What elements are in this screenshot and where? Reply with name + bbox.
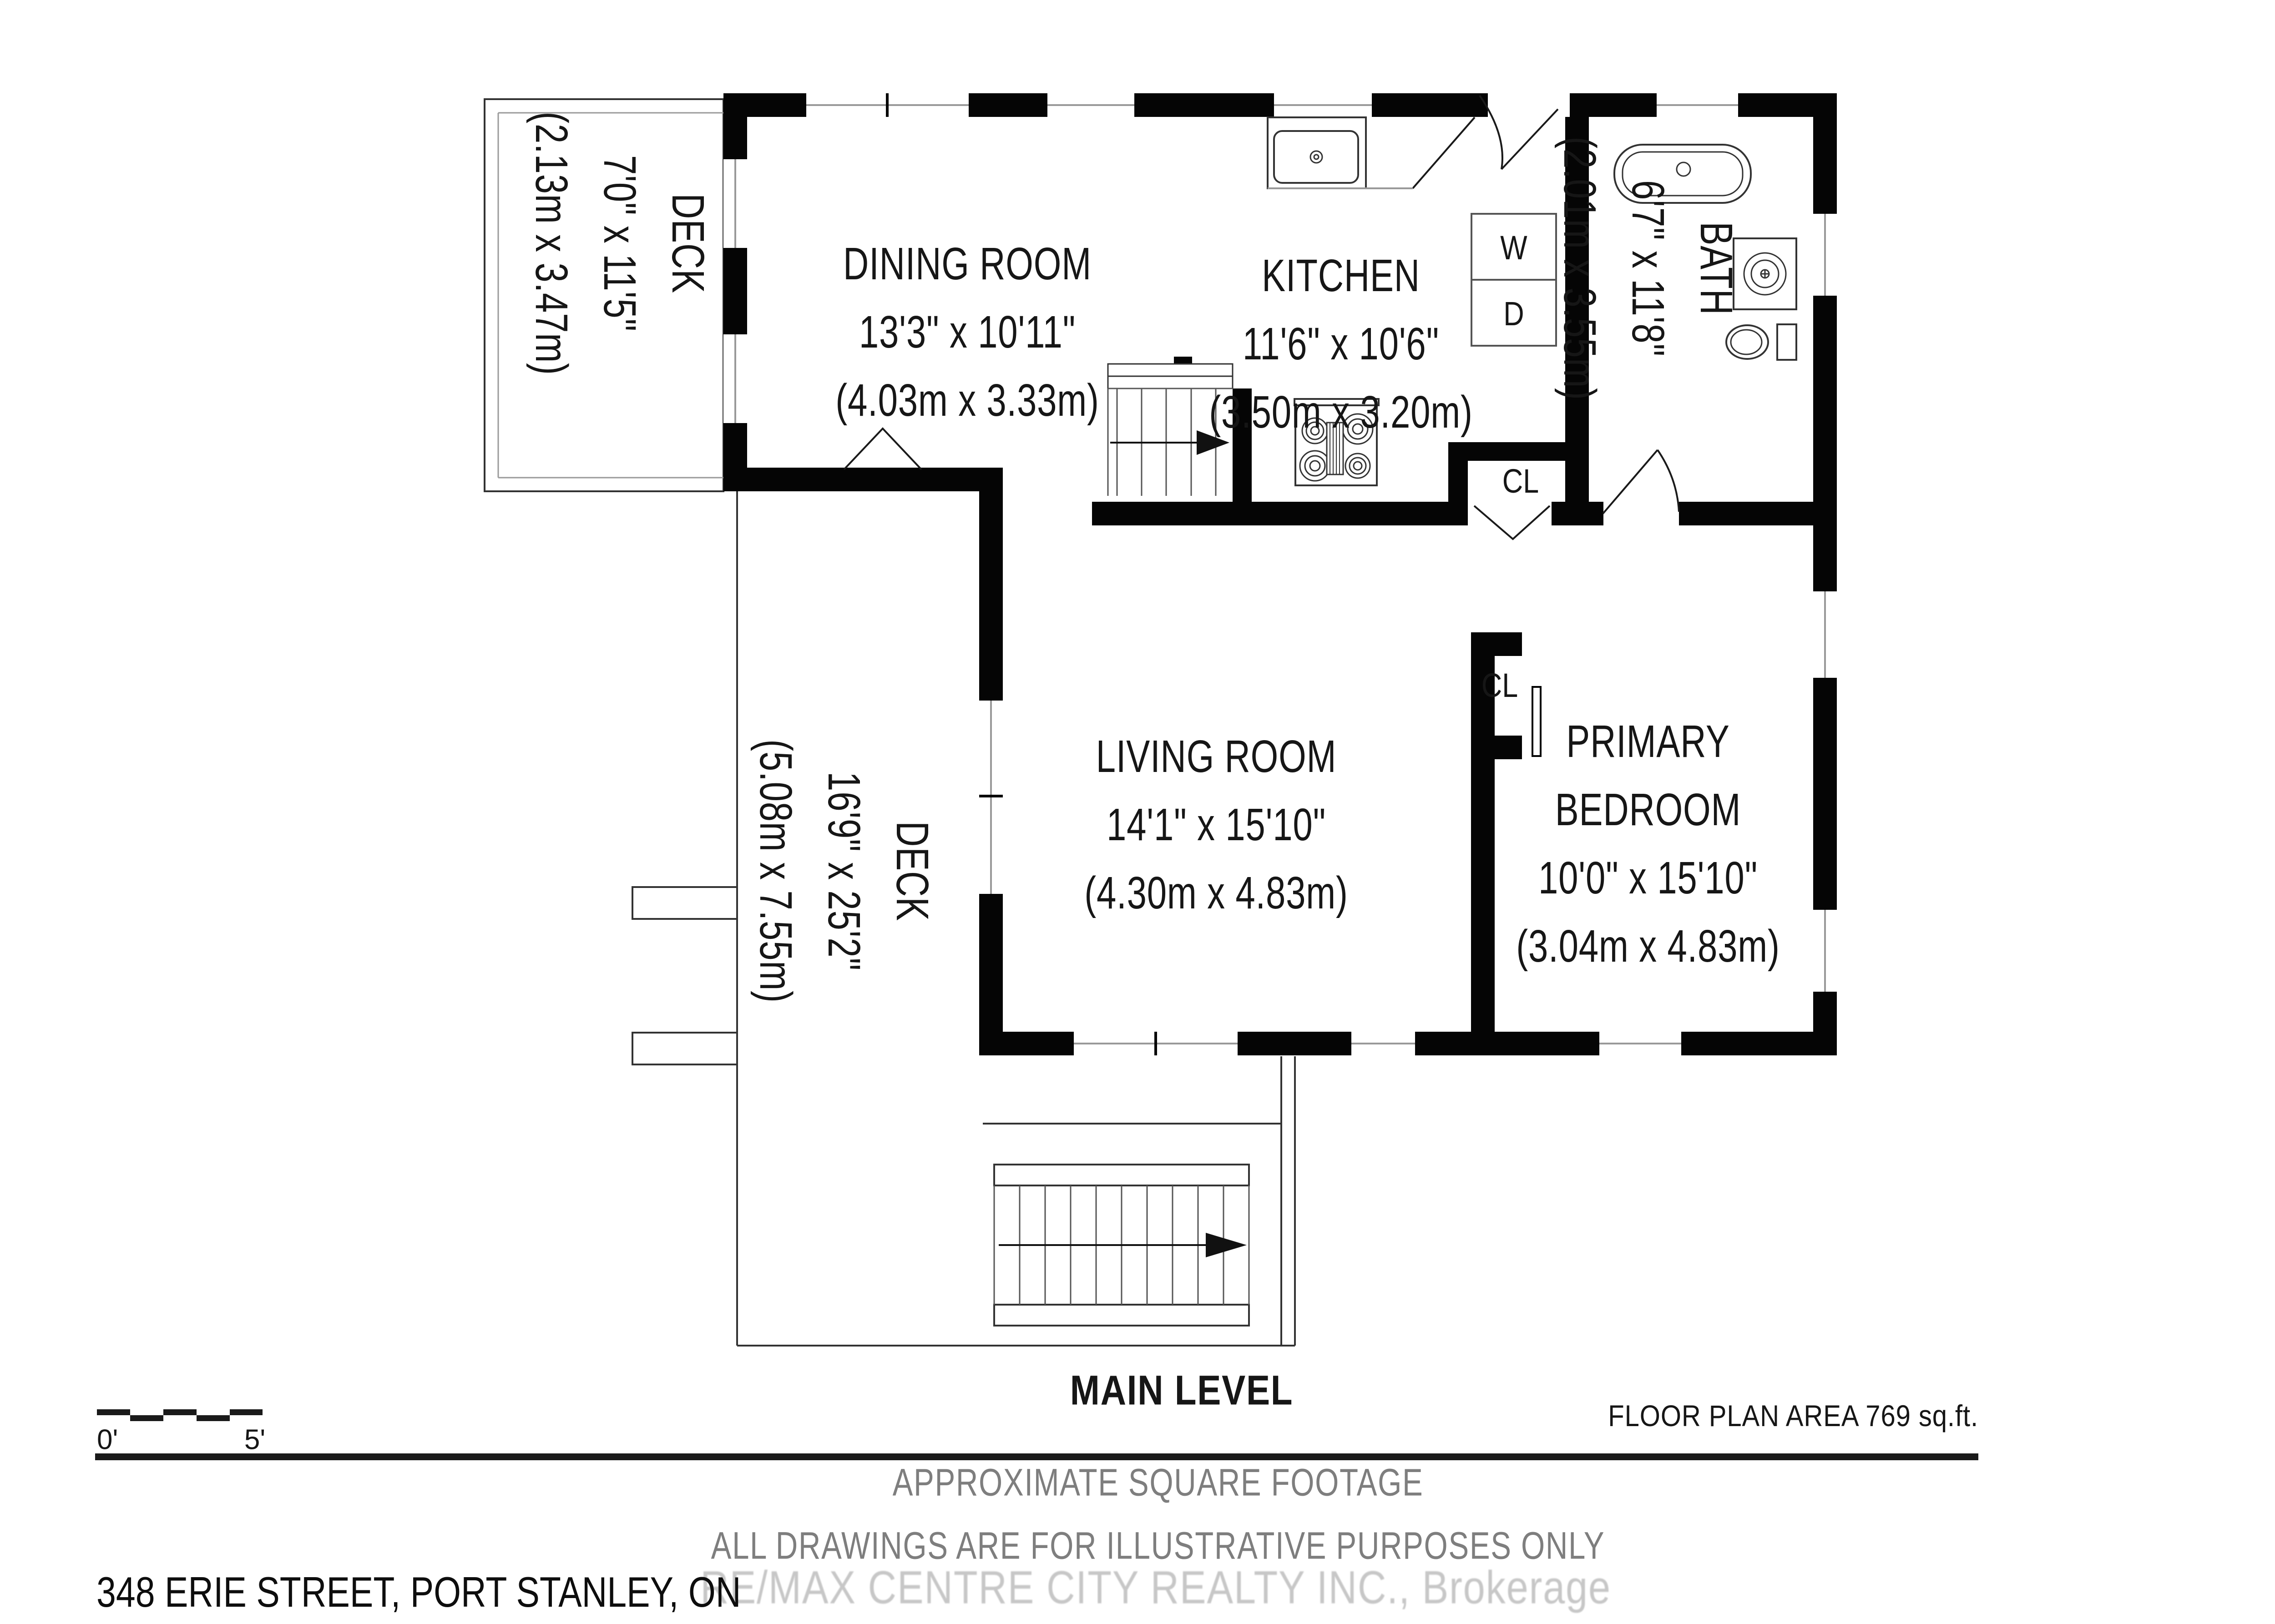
room-dims-metric: (2.13m x 3.47m) <box>517 111 586 375</box>
room-label-dining: DINING ROOM 13'3" x 10'11" (4.03m x 3.33… <box>835 230 1099 434</box>
floor-plan-area-note: FLOOR PLAN AREA 769 sq.ft. <box>1608 1398 1978 1433</box>
room-dims: 11'6" x 10'6" <box>1209 310 1473 378</box>
closet-bifold-door <box>1474 506 1550 539</box>
room-dims-metric: (4.03m x 3.33m) <box>835 366 1099 434</box>
room-label-deck-lower: DECK 16'9" x 25'2" (5.08m x 7.55m) <box>742 739 946 1003</box>
room-dims: 14'1" x 15'10" <box>1084 791 1348 859</box>
room-dims-metric: (2.01m x 3.55m) <box>1546 136 1614 400</box>
brokerage-watermark: RE/MAX CENTRE CITY REALTY INC., Brokerag… <box>700 1561 1611 1614</box>
room-dims-metric: (5.08m x 7.55m) <box>742 739 810 1003</box>
wall-closet-left <box>1448 442 1468 525</box>
room-name: DINING ROOM <box>835 230 1099 298</box>
scale-end-label: 5' <box>244 1424 265 1456</box>
room-dims: 6'7" x 11'8" <box>1614 136 1682 400</box>
room-name: BATH <box>1682 136 1750 400</box>
disclaimer-square-footage: APPROXIMATE SQUARE FOOTAGE <box>893 1461 1424 1505</box>
wall-bedroom-closet-bottom <box>1471 736 1522 759</box>
room-dims: 10'0" x 15'10" <box>1516 844 1780 912</box>
room-dims: 7'0" x 11'5" <box>586 111 654 375</box>
wall-left-dining <box>723 93 747 491</box>
room-dims-metric: (4.30m x 4.83m) <box>1084 859 1348 927</box>
room-label-deck-upper: DECK 7'0" x 11'5" (2.13m x 3.47m) <box>517 111 722 375</box>
scale-bar <box>97 1409 263 1421</box>
washer-label: W <box>1500 231 1527 265</box>
scale-start-label: 0' <box>97 1424 118 1456</box>
wall-bath-bottom-left <box>1552 502 1603 525</box>
wall-kitchen-living <box>1092 502 1468 525</box>
room-name: DECK <box>654 111 722 375</box>
level-title: MAIN LEVEL <box>1070 1367 1294 1415</box>
room-dims-metric: (3.50m x 3.20m) <box>1209 378 1473 446</box>
deck-stairs <box>994 1165 1249 1326</box>
dryer-label: D <box>1503 297 1524 331</box>
deck-step-lower <box>632 1033 737 1064</box>
room-label-living: LIVING ROOM 14'1" x 15'10" (4.30m x 4.83… <box>1084 722 1348 927</box>
closet-label-bedroom: CL <box>1481 669 1518 702</box>
room-label-primary-bedroom: PRIMARY BEDROOM 10'0" x 15'10" (3.04m x … <box>1516 707 1780 980</box>
floor-plan-canvas: DINING ROOM 13'3" x 10'11" (4.03m x 3.33… <box>0 0 2275 1624</box>
room-name-2: BEDROOM <box>1516 776 1780 844</box>
room-label-kitchen: KITCHEN 11'6" x 10'6" (3.50m x 3.20m) <box>1209 242 1473 446</box>
kitchen-sink <box>1268 117 1413 188</box>
bath-door-swing <box>1603 450 1679 514</box>
room-label-bath: BATH 6'7" x 11'8" (2.01m x 3.55m) <box>1546 136 1750 400</box>
dining-deck-door <box>844 429 921 469</box>
deck-stairs-direction-arrow <box>1206 1233 1247 1257</box>
room-name: KITCHEN <box>1209 242 1473 310</box>
room-dims: 16'9" x 25'2" <box>810 739 878 1003</box>
closet-label-kitchen: CL <box>1502 464 1539 498</box>
wall-bath-bottom-right <box>1679 502 1837 525</box>
room-dims: 13'3" x 10'11" <box>835 298 1099 366</box>
back-door-opening <box>1488 93 1570 117</box>
deck-step-upper <box>632 887 737 919</box>
property-address: 348 ERIE STREET, PORT STANLEY, ON <box>96 1568 741 1617</box>
wall-closet-top <box>1456 442 1565 461</box>
room-name: PRIMARY <box>1516 707 1780 776</box>
room-name: LIVING ROOM <box>1084 722 1348 791</box>
room-dims-metric: (3.04m x 4.83m) <box>1516 912 1780 980</box>
wall-bedroom-closet-top <box>1471 632 1522 656</box>
footer-rule <box>95 1453 1978 1460</box>
wall-dining-bottom <box>723 468 1003 491</box>
wall-bedroom-divider <box>1471 759 1495 1032</box>
room-name: DECK <box>878 739 946 1003</box>
